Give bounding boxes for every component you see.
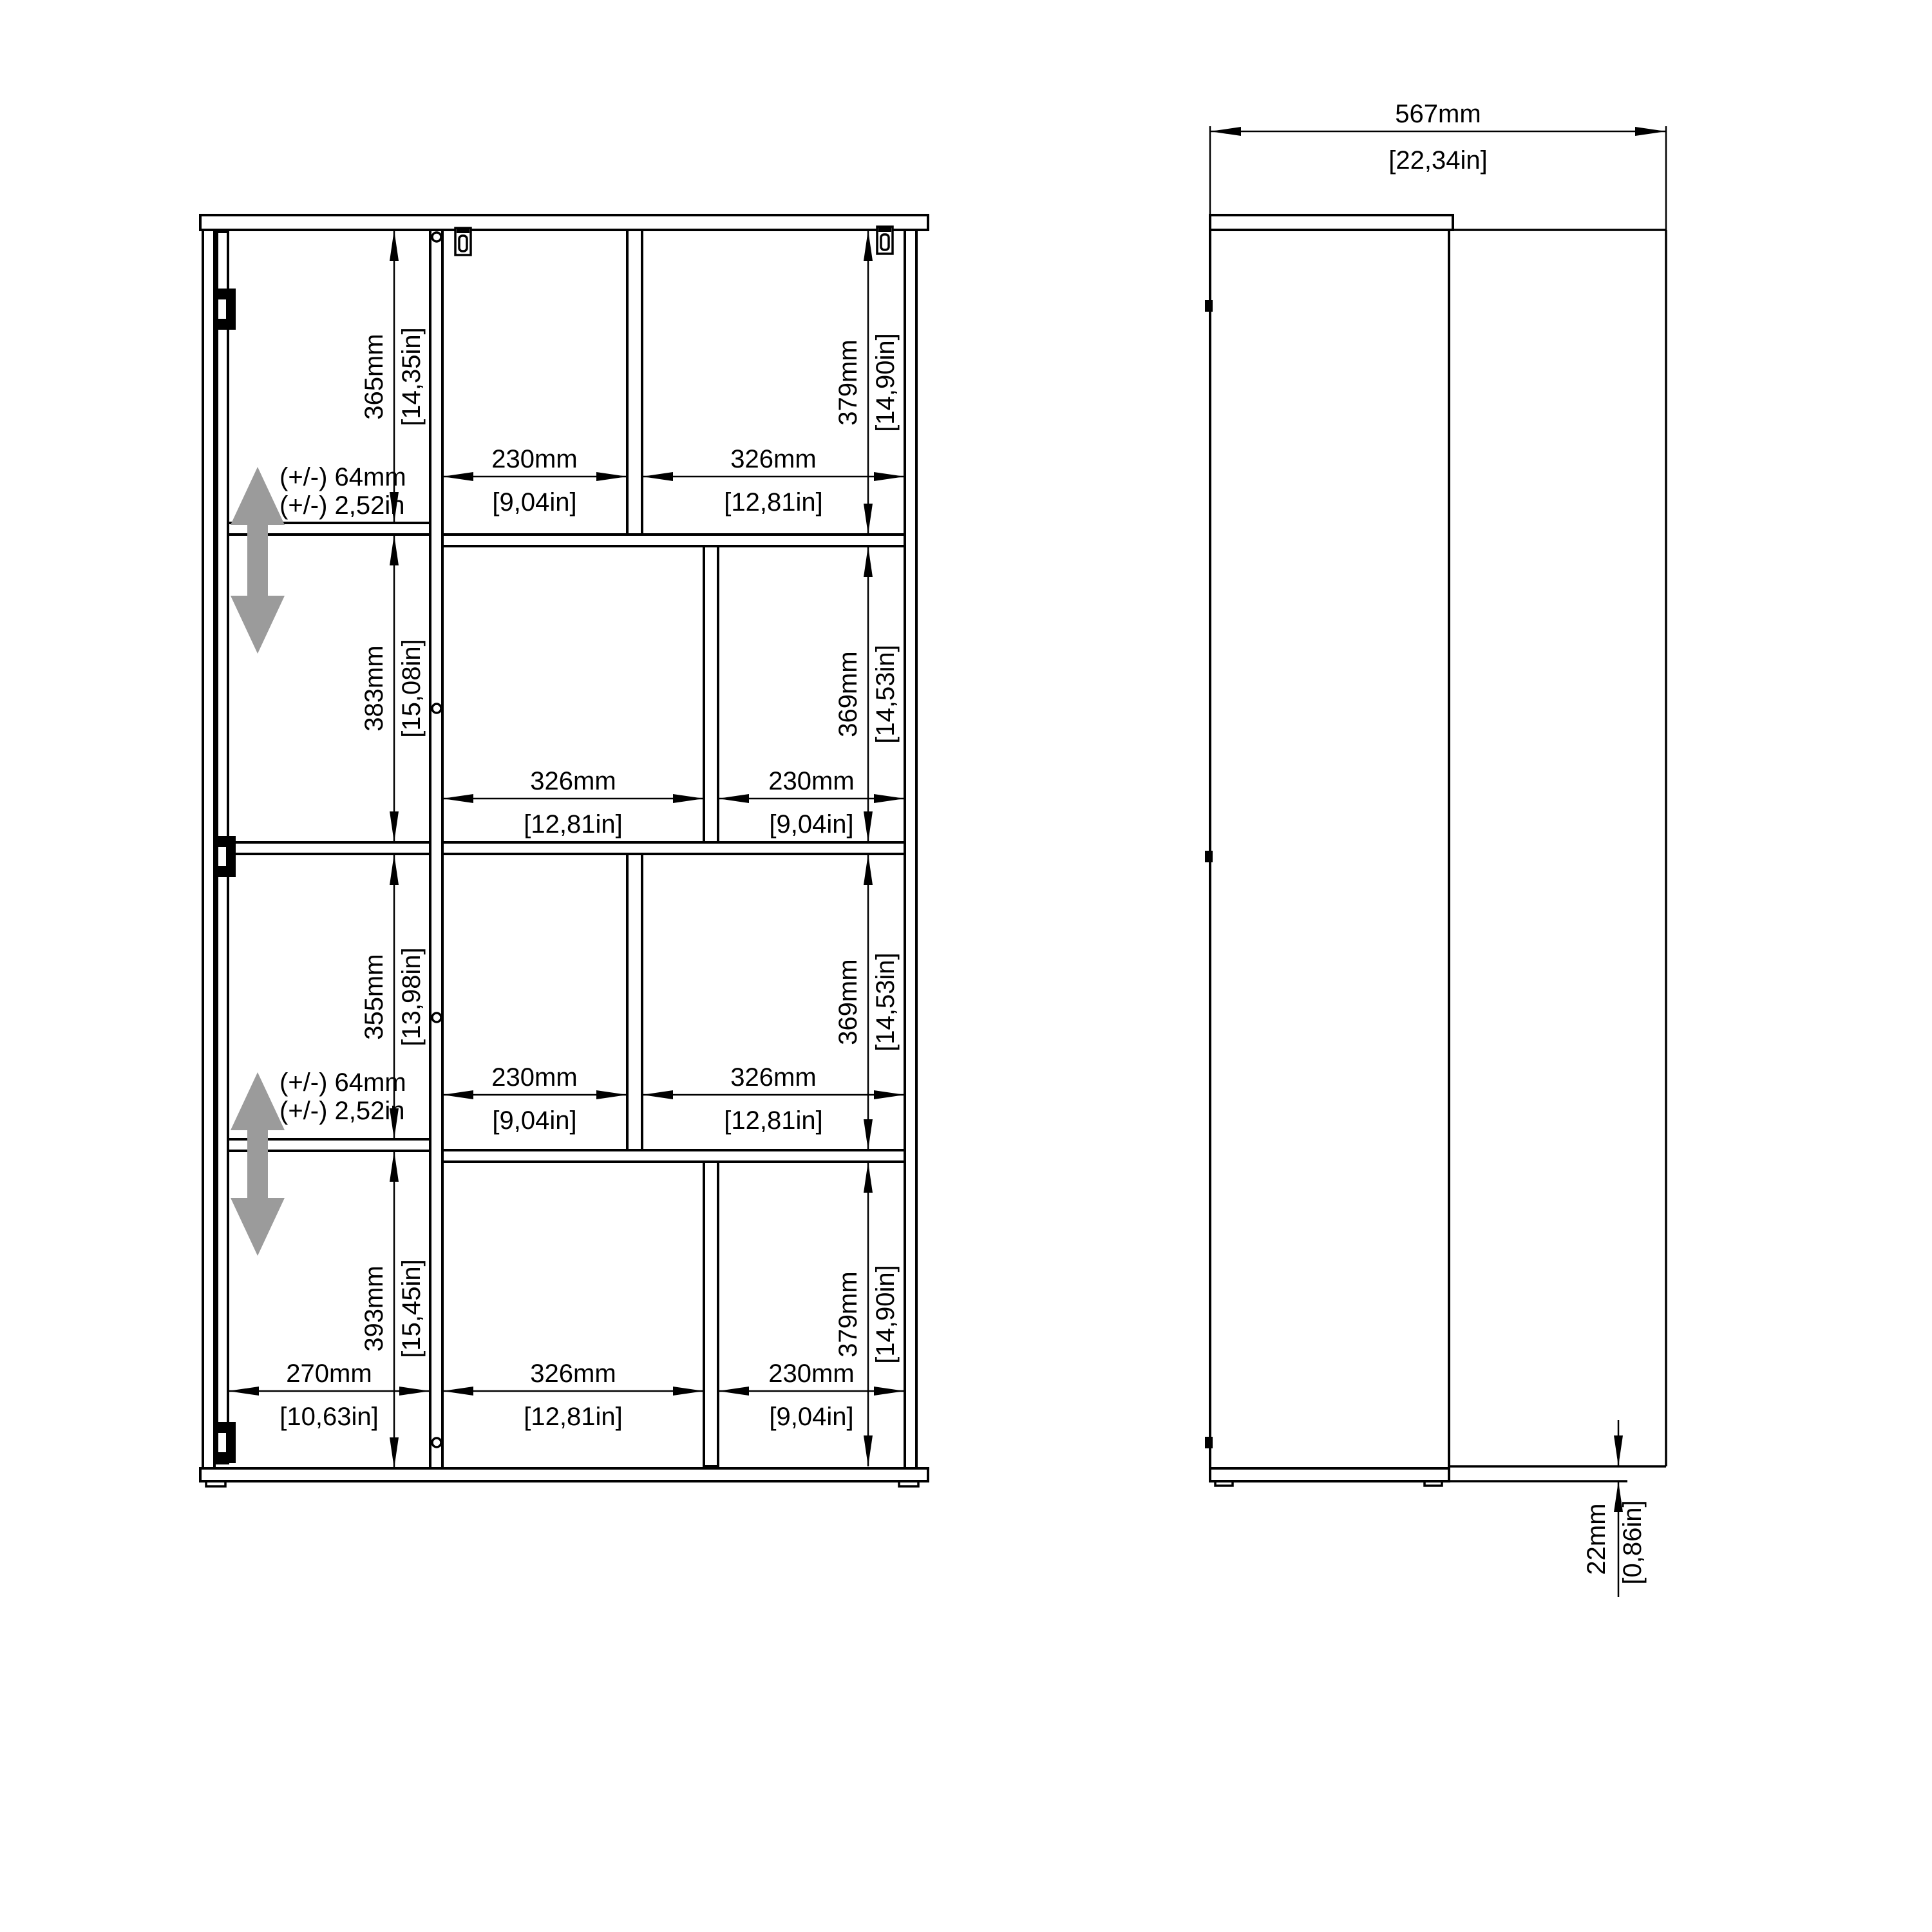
shelf-adjust-indicators: (+/-) 64mm (+/-) 2,52in (+/-) 64mm (+/-)… <box>231 463 406 1256</box>
dim-depth-in: [22,34in] <box>1388 146 1487 175</box>
shelf-pin-hole <box>432 232 441 241</box>
right-shelf-3 <box>442 1150 905 1162</box>
dim-row1-w2-in: [12,81in] <box>724 488 822 516</box>
side-bottom-board <box>1210 1468 1449 1481</box>
dim-row4-w0-mm: 270mm <box>286 1359 372 1388</box>
front-left-wall <box>203 230 214 1468</box>
side-panel <box>1210 230 1449 1468</box>
depth-dimension: 567mm [22,34in] <box>1210 100 1666 230</box>
dim-row2-w2-in: [9,04in] <box>769 810 853 838</box>
dim-plinth-in: [0,86in] <box>1618 1500 1647 1584</box>
dim-row4-w2-in: [9,04in] <box>769 1403 853 1431</box>
dim-row1-w1-in: [9,04in] <box>492 488 576 516</box>
dim-row3-w2-in: [12,81in] <box>724 1106 822 1135</box>
row2-divider <box>704 546 718 842</box>
front-right-wall <box>905 230 916 1468</box>
door-shelf-2 <box>228 842 430 854</box>
row4-divider <box>704 1162 718 1466</box>
side-top-board <box>1210 215 1453 230</box>
dim-right-row1-mm: 379mm <box>834 339 862 425</box>
dim-right-row1-in: [14,90in] <box>871 333 900 431</box>
dim-door-row2-mm: 383mm <box>360 645 388 731</box>
width-dimensions: 230mm [9,04in] 326mm [12,81in] 326mm [12… <box>228 445 905 1431</box>
dim-right-row3-in: [14,53in] <box>871 952 900 1051</box>
dim-door-row3-mm: 355mm <box>360 954 388 1039</box>
dim-row3-w1-in: [9,04in] <box>492 1106 576 1135</box>
dim-door-row4-mm: 393mm <box>360 1265 388 1351</box>
dim-row2-w2-mm: 230mm <box>768 767 854 795</box>
shelf-pin-hole <box>432 1438 441 1447</box>
side-back-foot <box>1425 1481 1442 1486</box>
side-cabinet-structure <box>1205 215 1666 1486</box>
dim-door-row1-mm: 365mm <box>360 334 388 419</box>
dim-door-row1-in: [14,35in] <box>397 327 426 426</box>
hinge-mark <box>1205 300 1213 312</box>
plinth-dimension: 22mm [0,86in] <box>1582 1420 1647 1597</box>
right-shelf-1 <box>442 535 905 546</box>
dim-right-row2-in: [14,53in] <box>871 645 900 743</box>
front-right-foot <box>899 1481 918 1486</box>
dim-row1-w1-mm: 230mm <box>491 445 577 473</box>
cam-lock-icon <box>877 227 893 254</box>
shelf-adjust-note-mm: (+/-) 64mm <box>279 1068 406 1097</box>
dim-door-row4-in: [15,45in] <box>397 1259 426 1358</box>
dim-row4-w1-mm: 326mm <box>530 1359 616 1388</box>
dim-door-row3-in: [13,98in] <box>397 947 426 1046</box>
dim-row4-w1-in: [12,81in] <box>524 1403 622 1431</box>
shelf-pin-hole <box>432 704 441 713</box>
dim-row4-w2-mm: 230mm <box>768 1359 854 1388</box>
shelf-pin-hole <box>432 1013 441 1022</box>
front-left-foot <box>206 1481 225 1486</box>
right-shelf-2 <box>442 842 905 854</box>
row1-divider <box>627 230 642 535</box>
shelf-adjust-note-in: (+/-) 2,52in <box>279 1097 405 1125</box>
dim-row2-w1-in: [12,81in] <box>524 810 622 838</box>
front-bottom-board <box>200 1468 928 1481</box>
center-divider <box>430 230 442 1468</box>
dim-row1-w2-mm: 326mm <box>730 445 816 473</box>
dim-door-row2-in: [15,08in] <box>397 639 426 737</box>
shelf-adjust-note-in: (+/-) 2,52in <box>279 491 405 520</box>
hinge-mark <box>1205 1437 1213 1448</box>
dim-plinth-mm: 22mm <box>1582 1503 1611 1575</box>
row3-divider <box>627 854 642 1150</box>
double-arrow-icon <box>231 467 285 654</box>
hinge-mark <box>1205 851 1213 862</box>
front-top-board <box>200 215 928 230</box>
side-view: 567mm [22,34in] 22mm [0,86in] <box>1205 100 1666 1597</box>
shelf-adjust-note-mm: (+/-) 64mm <box>279 463 406 491</box>
dim-right-row3-mm: 369mm <box>834 959 862 1045</box>
dim-right-row4-mm: 379mm <box>834 1271 862 1357</box>
dim-right-row2-mm: 369mm <box>834 651 862 737</box>
front-view: (+/-) 64mm (+/-) 2,52in (+/-) 64mm (+/-)… <box>200 215 928 1486</box>
cam-lock-icon <box>455 228 471 255</box>
furniture-dimension-drawing: (+/-) 64mm (+/-) 2,52in (+/-) 64mm (+/-)… <box>0 0 1932 1932</box>
double-arrow-icon <box>231 1072 285 1256</box>
dim-right-row4-in: [14,90in] <box>871 1265 900 1363</box>
dim-depth-mm: 567mm <box>1395 100 1481 128</box>
dim-row4-w0-in: [10,63in] <box>279 1403 378 1431</box>
dim-row2-w1-mm: 326mm <box>530 767 616 795</box>
dim-row3-w2-mm: 326mm <box>730 1063 816 1092</box>
dim-row3-w1-mm: 230mm <box>491 1063 577 1092</box>
side-front-foot <box>1215 1481 1233 1486</box>
